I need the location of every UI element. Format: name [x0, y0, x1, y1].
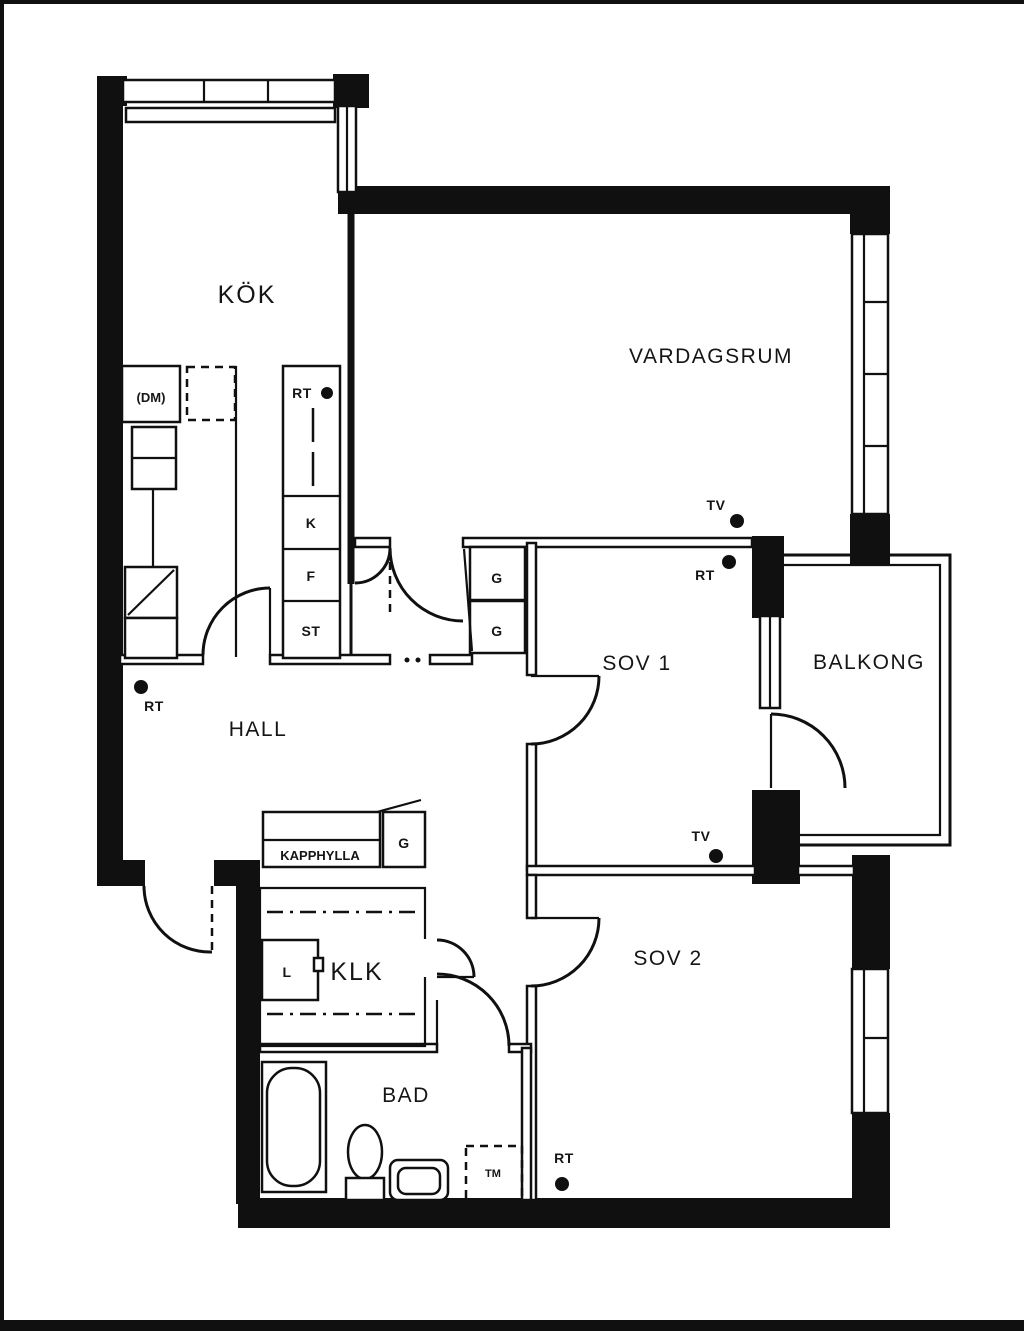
partition-vr-sov1: [463, 538, 752, 547]
rt-label-sov1: RT: [695, 567, 715, 583]
sov2-right-window: [852, 969, 888, 1113]
rt-dot-hall: [134, 680, 148, 694]
livingroom-double-doors: [355, 548, 463, 621]
scan-bottom-bar: [0, 1320, 1024, 1331]
wall-klk-bad-left: [236, 884, 260, 1204]
rt-dot-sov2: [555, 1177, 569, 1191]
wall-bottom: [238, 1198, 890, 1228]
balcony-rail-outer: [784, 555, 950, 845]
hall-g-closet-door-line: [377, 800, 421, 812]
balcony-railing: [784, 555, 950, 845]
g-label-2: G: [491, 623, 502, 639]
rt-label-hall: RT: [144, 698, 164, 714]
opening-mark-dot: [416, 658, 421, 663]
room-label-sov1: SOV 1: [602, 652, 671, 675]
wall-hall-bottom-left: [97, 860, 145, 886]
rt-label-kitchen: RT: [292, 385, 312, 401]
g-label-1: G: [491, 570, 502, 586]
partition-sov2-left-upper: [527, 875, 536, 918]
kitchen-dashed-appliance-box: [187, 367, 235, 420]
appliance-label-dm: (DM): [137, 390, 166, 405]
g-label-hall: G: [398, 835, 409, 851]
room-label-hall: HALL: [229, 718, 288, 741]
wall-livingroom-right-upper-corner: [850, 186, 890, 234]
floorplan-page: KÖK VARDAGSRUM SOV 1 BALKONG HALL SOV 2 …: [0, 0, 1024, 1331]
room-label-balkong: BALKONG: [813, 651, 925, 674]
toilet-tank: [346, 1178, 384, 1200]
sov2-door: [531, 918, 599, 986]
wall-livingroom-right-lower-corner: [850, 514, 890, 566]
partition-bad-right: [522, 1048, 531, 1200]
wall-sov2-right-upper: [852, 855, 890, 969]
klk-door: [437, 940, 474, 977]
washbasin-inner: [398, 1168, 440, 1194]
kitchen-top-window: [123, 80, 335, 122]
room-label-vardagsrum: VARDAGSRUM: [629, 345, 793, 368]
l-label-klk: L: [282, 964, 291, 980]
bathroom-fixtures: [262, 1062, 522, 1200]
kapphylla-label: KAPPHYLLA: [280, 848, 360, 863]
marker-dots: [134, 387, 744, 1191]
closet-label-f: F: [306, 568, 315, 584]
partition-sov1-left-lower: [527, 744, 536, 870]
kitchen-right-window: [338, 106, 356, 192]
scan-left-line: [0, 0, 4, 1331]
floorplan-drawing: KÖK VARDAGSRUM SOV 1 BALKONG HALL SOV 2 …: [0, 0, 1024, 1331]
opening-mark-dot: [405, 658, 410, 663]
kitchen-lower-cabinet: [125, 618, 177, 658]
closet-label-k: K: [306, 515, 317, 531]
partition-sov1-sov2: [527, 866, 755, 875]
tv-dot-sov1: [709, 849, 723, 863]
bathtub-inner: [267, 1068, 320, 1186]
partition-vr-bottom-stub: [355, 538, 390, 547]
wall-left: [97, 76, 123, 884]
sov1-balcony-window: [760, 616, 780, 708]
rt-dot-kitchen: [321, 387, 333, 399]
closet-label-st: ST: [302, 623, 321, 639]
tv-label-vardagsrum: TV: [707, 497, 726, 513]
tv-label-sov1: TV: [692, 828, 711, 844]
entry-door: [144, 886, 212, 952]
room-label-klk: KLK: [330, 958, 383, 986]
wall-balcony-left-upper-pillar: [752, 536, 784, 618]
livingroom-right-window: [852, 234, 888, 514]
wall-livingroom-top: [338, 186, 890, 214]
wall-hall-bottom-right: [214, 860, 260, 886]
sov1-door: [531, 676, 599, 744]
klk-l-cabinet-handle: [314, 958, 323, 971]
balcony-door: [771, 714, 845, 788]
room-label-kok: KÖK: [218, 281, 277, 309]
balcony-rail-inner: [784, 565, 940, 835]
kitchen-closet-column: [283, 366, 340, 658]
room-label-bad: BAD: [382, 1084, 430, 1107]
rt-dot-sov1: [722, 555, 736, 569]
partition-hall-top-3: [430, 655, 472, 664]
toilet-bowl: [348, 1125, 382, 1179]
tv-dot-vardagsrum: [730, 514, 744, 528]
room-label-sov2: SOV 2: [633, 947, 702, 970]
rt-label-sov2: RT: [554, 1150, 574, 1166]
tm-label-bad: TM: [485, 1168, 501, 1180]
kitchen-fixtures: [122, 366, 340, 658]
wall-balcony-left-lower-pillar: [752, 790, 800, 884]
bad-door: [437, 974, 509, 1046]
partition-sov1-left-upper: [527, 543, 536, 675]
scan-top-line: [0, 0, 1024, 4]
wall-kitchen-top-right-corner: [333, 74, 369, 108]
partition-sov2-top-right: [798, 866, 854, 875]
